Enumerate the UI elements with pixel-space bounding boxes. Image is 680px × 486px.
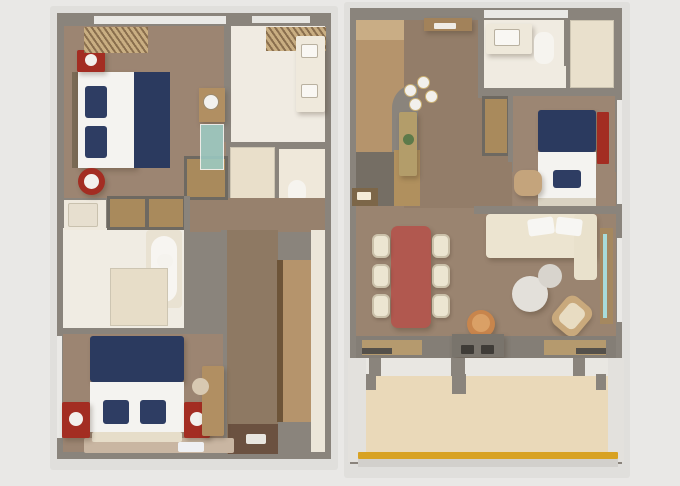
page-background: { "meta": { "description": "3D top-down … (0, 0, 680, 486)
coffee-table-small (538, 264, 562, 288)
bar-stool-2 (417, 76, 430, 89)
vanity2-sink (68, 203, 98, 227)
stairs1 (283, 260, 311, 422)
stairs1-doormat (246, 434, 266, 444)
bed1-duvet (134, 72, 170, 168)
deck-post-left (366, 374, 376, 390)
left-window-top-right (252, 16, 310, 23)
nightstand2-left-lamp (69, 412, 83, 426)
right-window-east-living (617, 238, 622, 322)
bed2-pillow-right (140, 400, 166, 424)
stair1-tile-strip (311, 230, 325, 452)
wall-bath3-south (482, 88, 615, 96)
armchair3 (514, 170, 542, 196)
sink3 (494, 29, 520, 46)
dining-chair-4 (432, 234, 450, 258)
deck-post-right (596, 374, 606, 390)
shower3-floor (570, 20, 614, 88)
bed2-tray (178, 442, 204, 452)
hall1-floor (184, 198, 325, 232)
bar-stool-4 (409, 98, 422, 111)
tv-screen (603, 234, 607, 318)
balcony-railing (358, 452, 618, 459)
bed2-duvet (90, 336, 184, 382)
wardrobe2-shelves-right (149, 199, 183, 227)
left-window-top (94, 16, 226, 24)
bed2-pillow-left (103, 400, 129, 424)
bed1-pillow-bottom (85, 126, 107, 158)
desk2 (202, 366, 224, 436)
wall-bedroom3-living (474, 206, 622, 214)
dining-chair-6 (432, 294, 450, 318)
bar-stool-1 (404, 84, 417, 97)
bed3-bench (538, 198, 596, 206)
void-shelf-item (357, 192, 371, 200)
shower2-floor (110, 268, 168, 326)
console-plant (403, 134, 414, 145)
sofa-pillow-1 (527, 216, 555, 236)
dining-table (391, 226, 431, 328)
console-knob-left (461, 345, 474, 354)
sofa-pillow-2 (555, 216, 583, 236)
hall3-floor (404, 150, 512, 208)
bed3-pillow (553, 170, 581, 188)
balcony-deck (366, 376, 608, 452)
wardrobe2-shelves-left (110, 199, 145, 227)
balcony-railing-shadow (358, 459, 618, 467)
dressing-mirror1 (203, 94, 219, 110)
right-window-east-bedroom (617, 100, 622, 204)
bath1-sink-bottom (301, 84, 318, 98)
vent-left (362, 348, 392, 354)
pouf-top (472, 314, 490, 332)
vent-right (576, 348, 606, 354)
deck-post-center (452, 374, 466, 394)
corridor1-floor (226, 230, 278, 454)
bed1-pillow-top (85, 86, 107, 118)
dining-chair-1 (372, 234, 390, 258)
wall-bedroom1-bath1 (224, 26, 231, 142)
duplex-floor-plan-image (0, 0, 680, 486)
glass-panel1 (200, 124, 224, 170)
balcony-wall-right (608, 358, 624, 462)
nightstand1-lamp (85, 54, 97, 66)
media-console (452, 334, 504, 357)
entry-doormat (434, 23, 456, 29)
bar-stool-3 (425, 90, 438, 103)
dining-chair-5 (432, 264, 450, 288)
mullion-right (573, 358, 585, 376)
bed3-duvet (538, 110, 596, 152)
right-window-top (484, 10, 568, 18)
closet3-shelves (485, 99, 507, 153)
console-knob-right (481, 345, 494, 354)
nightstand3 (597, 112, 609, 164)
stairs2-landing (356, 20, 404, 40)
toilet2 (157, 254, 173, 268)
balcony-wall-left (348, 358, 366, 462)
dining-chair-2 (372, 264, 390, 288)
toilet3 (534, 32, 554, 64)
curtain-slats-bedroom1 (84, 27, 148, 53)
wall-bath2-east (184, 196, 190, 332)
bed2-bench (92, 432, 182, 442)
bath1-sink-top (301, 44, 318, 58)
side-table1-top (84, 174, 99, 189)
dining-chair-3 (372, 294, 390, 318)
desk2-stool (192, 378, 209, 395)
